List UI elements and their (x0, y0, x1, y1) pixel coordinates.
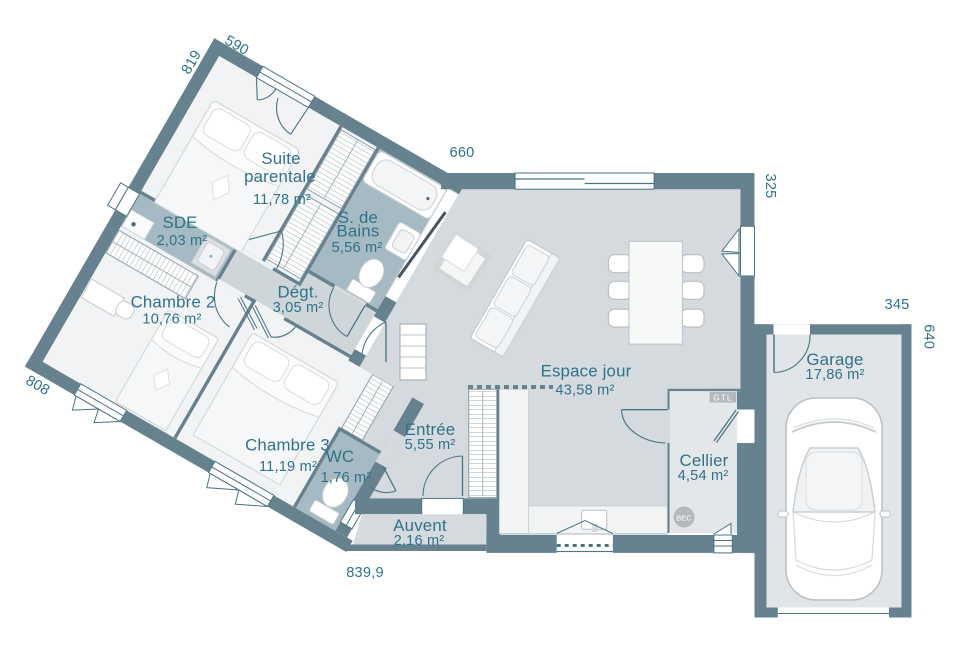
svg-text:Chambre 2: Chambre 2 (131, 293, 216, 312)
svg-text:43,58 m²: 43,58 m² (555, 383, 614, 399)
svg-text:325: 325 (762, 174, 778, 199)
svg-text:839,9: 839,9 (346, 565, 384, 581)
svg-text:Espace jour: Espace jour (541, 362, 632, 381)
svg-text:parentale: parentale (244, 167, 316, 186)
svg-text:SDE: SDE (162, 213, 197, 232)
svg-text:BEC: BEC (676, 513, 692, 522)
svg-text:GTL: GTL (713, 392, 733, 402)
svg-text:5,55 m²: 5,55 m² (405, 437, 456, 453)
svg-text:5,56 m²: 5,56 m² (332, 240, 383, 256)
svg-text:11,78 m²: 11,78 m² (253, 192, 311, 208)
svg-text:17,86 m²: 17,86 m² (805, 367, 864, 383)
svg-text:Bains: Bains (337, 222, 380, 241)
svg-text:WC: WC (326, 447, 354, 466)
svg-text:660: 660 (450, 145, 475, 161)
svg-text:4,54 m²: 4,54 m² (678, 468, 729, 484)
svg-text:Chambre 3: Chambre 3 (245, 436, 330, 455)
svg-text:10,76 m²: 10,76 m² (142, 312, 201, 328)
svg-text:Dégt.: Dégt. (277, 283, 318, 302)
svg-text:640: 640 (921, 324, 937, 349)
svg-text:Suite: Suite (261, 149, 300, 168)
svg-text:2,16 m²: 2,16 m² (394, 533, 445, 549)
svg-text:3,05 m²: 3,05 m² (273, 300, 324, 316)
svg-text:1,76 m²: 1,76 m² (321, 470, 372, 486)
svg-text:11,19 m²: 11,19 m² (259, 459, 317, 475)
svg-text:345: 345 (885, 297, 910, 313)
svg-text:2,03 m²: 2,03 m² (157, 233, 208, 249)
